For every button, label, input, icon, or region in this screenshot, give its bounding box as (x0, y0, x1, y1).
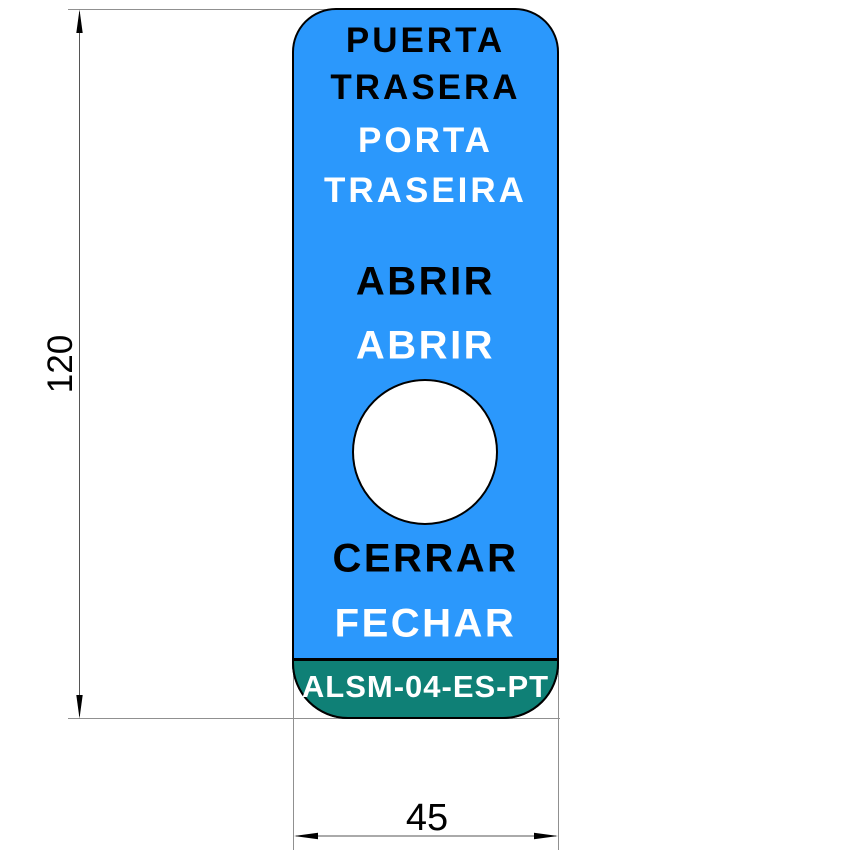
arrowhead-up-icon (76, 10, 82, 34)
label-text-line: TRASERA (294, 68, 557, 108)
technical-drawing-canvas: PUERTA TRASERA PORTA TRASEIRA ABRIR ABRI… (0, 0, 850, 851)
arrowhead-right-icon (534, 833, 558, 839)
label-text-line: FECHAR (294, 602, 557, 647)
label-text-line: TRASEIRA (294, 171, 557, 211)
label-text-line: PORTA (294, 121, 557, 161)
label-text-line: PUERTA (294, 21, 557, 61)
width-dimension-value: 45 (377, 799, 477, 837)
arrowhead-down-icon (76, 695, 82, 719)
label-text-line: CERRAR (294, 537, 557, 582)
button-hole (352, 379, 498, 525)
label-text-line: ABRIR (294, 324, 557, 369)
height-dimension-value: 120 (28, 332, 92, 396)
arrowhead-left-icon (294, 833, 318, 839)
label-text-line: ABRIR (294, 260, 557, 305)
label-footer: ALSM-04-ES-PT (292, 658, 559, 719)
label-artwork: PUERTA TRASERA PORTA TRASEIRA ABRIR ABRI… (292, 8, 559, 719)
label-part-number: ALSM-04-ES-PT (302, 669, 549, 705)
